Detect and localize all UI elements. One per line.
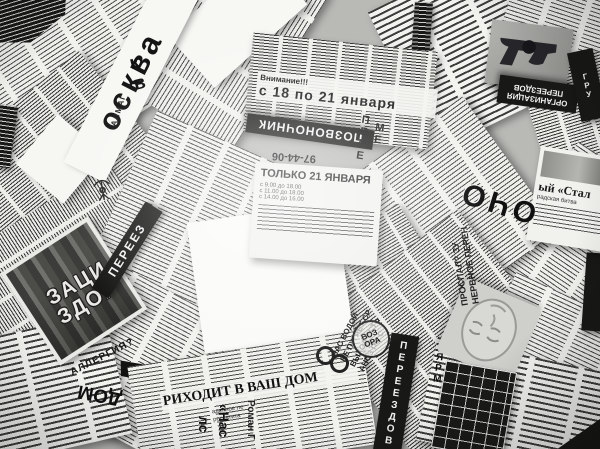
nas-text: «Нас (216, 404, 232, 437)
vertical-nas: «Нас (216, 404, 232, 437)
number-table (431, 360, 517, 449)
ls-text: лс (196, 416, 212, 433)
roman-text: Роман Г (245, 400, 256, 440)
umbrella-figure-icon (89, 174, 116, 205)
vertical-roman: Роман Г (245, 400, 256, 440)
ad-only21: ТОЛЬКО 21 ЯНВАРЯ с 9.00 до 18.00 с 11.00… (249, 162, 383, 267)
newspaper-collage-photo: осква кв АЛМАГ Внимание!!! с 18 по 21 ян… (0, 0, 600, 449)
gru-text: ГРУ (580, 71, 594, 99)
vertical-ls: лс (196, 416, 212, 433)
only21-fineprint (257, 204, 375, 238)
